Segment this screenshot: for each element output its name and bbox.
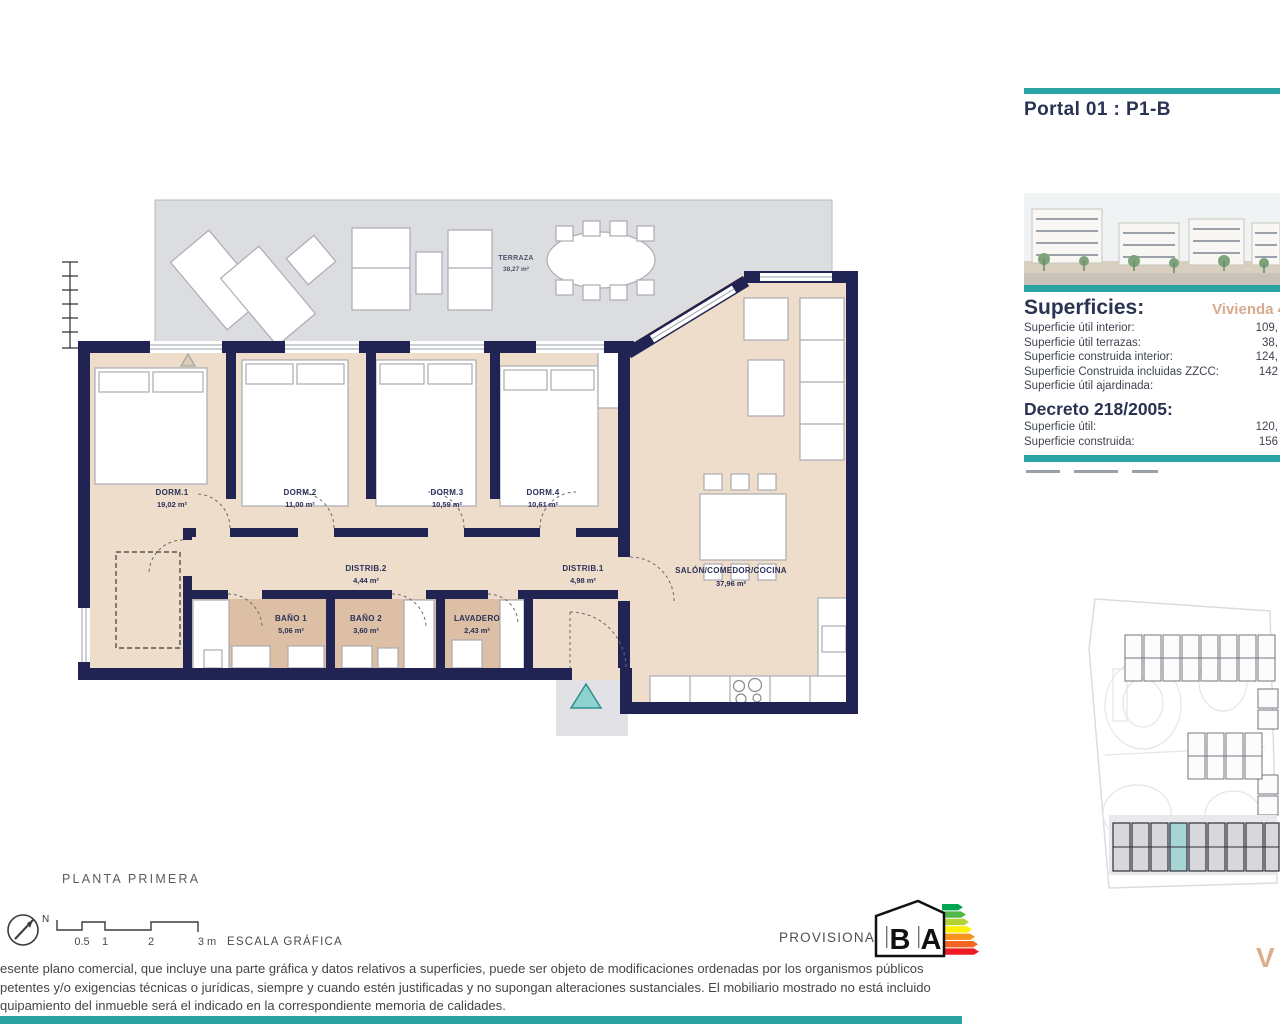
dimension-ticks: [60, 262, 78, 668]
superficie-row: Superficie construida interior: 124,: [1024, 351, 1280, 366]
room-area-dorm4: 10,61 m²: [528, 500, 559, 509]
north-label: N: [42, 914, 49, 925]
room-label-bano1: BAÑO 1: [275, 614, 307, 623]
room-label-salon: SALÓN/COMEDOR/COCINA: [675, 566, 787, 575]
decreto-heading: Decreto 218/2005:: [1024, 399, 1173, 420]
clipped-heading: [1026, 470, 1276, 476]
row-label: Superficie útil terrazas:: [1024, 337, 1141, 349]
north-compass-icon: N: [6, 908, 62, 952]
scale-bar: 0.5 1 2 3 m ESCALA GRÁFICA: [55, 912, 355, 952]
scale-tick: 1: [102, 936, 108, 948]
room-area-lavadero: 2,43 m²: [464, 626, 490, 635]
row-label: Superficie útil:: [1024, 421, 1096, 433]
row-value: 38,: [1262, 337, 1278, 349]
room-label-dorm4: DORM.4: [527, 488, 560, 497]
decreto-row: Superficie construida: 156: [1024, 436, 1280, 451]
divider-top: [1024, 88, 1280, 94]
divider-bottom: [1024, 455, 1280, 462]
room-label-distrib1: DISTRIB.1: [562, 564, 604, 573]
decreto-row: Superficie útil: 120,: [1024, 421, 1280, 436]
room-area-distrib2: 4,44 m²: [353, 576, 379, 585]
room-label-dorm2: DORM.2: [284, 488, 317, 497]
energy-letter-a: A: [921, 924, 942, 956]
superficies-heading: Superficies:: [1024, 296, 1144, 320]
scale-tick: 0.5: [74, 936, 89, 948]
superficie-row: Superficie útil terrazas: 38,: [1024, 337, 1280, 352]
room-label-dorm1: DORM.1: [156, 488, 189, 497]
superficies-rows: Superficie útil interior: 109, Superfici…: [1024, 322, 1280, 395]
vivienda-label: Vivienda 4: [1212, 301, 1280, 318]
room-area-salon: 37,96 m²: [716, 579, 747, 588]
room-area-distrib1: 4,98 m²: [570, 576, 596, 585]
row-value: 124,: [1256, 351, 1278, 363]
row-value: 156: [1259, 436, 1278, 448]
site-key-plan: [1085, 585, 1280, 900]
row-label: Superficie construida:: [1024, 436, 1135, 448]
divider-page-bottom: [0, 1016, 962, 1024]
superficie-row: Superficie útil ajardinada:: [1024, 380, 1280, 395]
room-label-terraza: TERRAZA: [498, 255, 534, 262]
building-render-image: [1024, 193, 1280, 285]
scale-tick: 3 m: [198, 936, 216, 948]
scale-tick: 2: [148, 936, 154, 948]
floor-title: PLANTA PRIMERA: [62, 872, 200, 886]
row-label: Superficie útil interior:: [1024, 322, 1135, 334]
room-area-dorm3: 10,59 m²: [432, 500, 463, 509]
legal-line: esente plano comercial, que incluye una …: [0, 960, 1010, 979]
legal-line: petentes y/o exigencias técnicas o juríd…: [0, 979, 1010, 998]
room-label-dorm3: DORM.3: [431, 488, 464, 497]
portal-title: Portal 01 : P1-B: [1024, 99, 1171, 121]
superficie-row: Superficie útil interior: 109,: [1024, 322, 1280, 337]
row-label: Superficie útil ajardinada:: [1024, 380, 1153, 392]
room-area-terraza: 38,27 m²: [503, 266, 530, 273]
energy-letter-b: B: [890, 924, 911, 956]
room-label-lavadero: LAVADERO: [454, 614, 500, 623]
legal-text: esente plano comercial, que incluye una …: [0, 960, 1010, 1016]
row-value: 120,: [1256, 421, 1278, 433]
floor-plan: TERRAZA 38,27 m² DORM.1 19,02 m² DORM.2 …: [60, 150, 860, 750]
row-value: 142: [1259, 366, 1278, 378]
room-label-bano2: BAÑO 2: [350, 614, 382, 623]
row-label: Superficie construida interior:: [1024, 351, 1173, 363]
room-area-dorm2: 11,00 m²: [285, 500, 315, 509]
divider-render: [1024, 285, 1280, 292]
row-label: Superficie Construida incluidas ZZCC:: [1024, 366, 1219, 378]
legal-line: quipamiento del inmueble será el indicad…: [0, 997, 1010, 1016]
brand-initial: V: [1256, 942, 1275, 974]
room-label-distrib2: DISTRIB.2: [345, 564, 387, 573]
room-area-bano2: 3,60 m²: [353, 626, 379, 635]
floorplan-page: { "title": { "portal": "Portal 01 : P1-B…: [0, 0, 1280, 1024]
row-value: 109,: [1256, 322, 1278, 334]
room-area-dorm1: 19,02 m²: [157, 500, 188, 509]
room-area-bano1: 5,06 m²: [278, 626, 304, 635]
energy-rating-icon: B A: [868, 896, 980, 962]
decreto-rows: Superficie útil: 120, Superficie constru…: [1024, 421, 1280, 451]
scale-caption: ESCALA GRÁFICA: [227, 935, 343, 948]
superficie-row: Superficie Construida incluidas ZZCC: 14…: [1024, 366, 1280, 381]
